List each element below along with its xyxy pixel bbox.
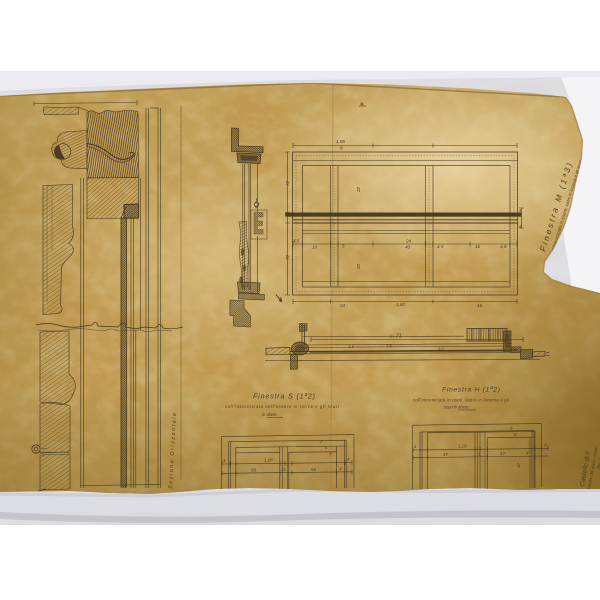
svg-text:10: 10 bbox=[312, 245, 318, 250]
svg-text:11: 11 bbox=[281, 467, 286, 472]
svg-text:scuri in abete.: scuri in abete. bbox=[444, 405, 470, 410]
svg-text:40: 40 bbox=[405, 245, 411, 250]
svg-text:1,05: 1,05 bbox=[336, 139, 345, 144]
svg-text:coll'incorniciata nell'ossere: coll'incorniciata nell'ossere in larice … bbox=[225, 404, 339, 409]
svg-text:Finestra S (1ª2): Finestra S (1ª2) bbox=[253, 394, 315, 401]
svg-text:7,6: 7,6 bbox=[386, 344, 392, 349]
svg-text:coll'incorniciata in noce, las: coll'incorniciata in noce, lastre in luc… bbox=[413, 398, 509, 403]
svg-text:1,6: 1,6 bbox=[348, 344, 354, 349]
svg-text:8: 8 bbox=[340, 146, 343, 151]
svg-text:16: 16 bbox=[475, 244, 481, 249]
svg-text:47: 47 bbox=[443, 452, 448, 457]
svg-text:24: 24 bbox=[405, 239, 412, 244]
svg-text:1,18: 1,18 bbox=[458, 444, 467, 449]
svg-text:5: 5 bbox=[342, 244, 345, 249]
svg-text:24: 24 bbox=[339, 303, 346, 308]
svg-text:4,5: 4,5 bbox=[293, 239, 300, 244]
svg-text:22: 22 bbox=[356, 263, 361, 270]
svg-text:1,: 1, bbox=[478, 451, 482, 456]
svg-text:56: 56 bbox=[311, 467, 316, 472]
svg-text:1,6: 1,6 bbox=[438, 346, 444, 351]
svg-text:56: 56 bbox=[251, 468, 256, 473]
svg-text:Finestra H (1ª2): Finestra H (1ª2) bbox=[442, 387, 500, 394]
svg-text:in abete.: in abete. bbox=[262, 412, 278, 417]
svg-text:47: 47 bbox=[500, 451, 505, 456]
svg-text:22: 22 bbox=[356, 186, 361, 193]
svg-text:1,18: 1,18 bbox=[264, 458, 273, 463]
svg-text:4,5: 4,5 bbox=[500, 244, 507, 249]
svg-text:1,60: 1,60 bbox=[396, 302, 405, 307]
svg-text:4,5: 4,5 bbox=[437, 244, 444, 249]
svg-text:16: 16 bbox=[477, 303, 483, 308]
